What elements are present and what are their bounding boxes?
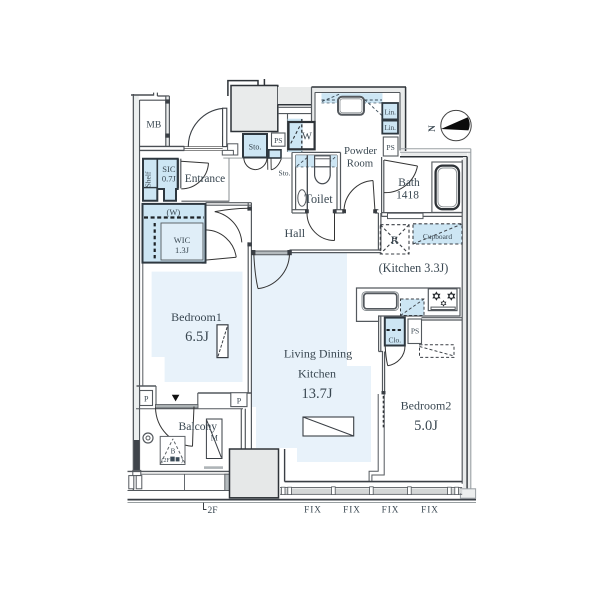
svg-text:13.7J: 13.7J (301, 386, 332, 402)
svg-text:6.5J: 6.5J (185, 329, 209, 345)
svg-text:R: R (391, 235, 399, 247)
svg-text:Shelf: Shelf (144, 171, 153, 187)
svg-text:MB: MB (146, 120, 161, 130)
svg-text:1418: 1418 (396, 189, 419, 201)
svg-text:Bath: Bath (398, 177, 420, 189)
svg-text:PS: PS (411, 326, 419, 335)
svg-text:Sto.: Sto. (249, 143, 262, 152)
svg-text:W: W (302, 132, 312, 143)
svg-text:M: M (211, 433, 218, 442)
svg-text:N: N (427, 125, 437, 132)
svg-text:FIX: FIX (343, 505, 361, 515)
svg-text:Lin.: Lin. (384, 124, 396, 132)
svg-text:5.0J: 5.0J (414, 418, 438, 434)
svg-text:WIC: WIC (174, 235, 191, 245)
svg-text:P: P (237, 396, 242, 405)
svg-text:FIX: FIX (421, 505, 439, 515)
svg-text:(Kitchen 3.3J): (Kitchen 3.3J) (379, 261, 449, 275)
svg-text:Bedroom1: Bedroom1 (171, 310, 222, 324)
svg-text:1.3J: 1.3J (175, 245, 190, 255)
svg-text:Kitchen: Kitchen (298, 366, 336, 380)
svg-text:(2F: (2F (161, 457, 170, 464)
svg-text:Sto.: Sto. (279, 169, 291, 178)
svg-text:Powder: Powder (344, 145, 377, 157)
svg-text:(W): (W) (167, 207, 181, 217)
svg-text:2F: 2F (207, 506, 217, 516)
svg-text:0.7J: 0.7J (162, 174, 177, 184)
svg-text:FIX: FIX (304, 505, 322, 515)
svg-text:SIC: SIC (162, 164, 176, 174)
svg-text:P: P (144, 395, 149, 404)
svg-text:Lin.: Lin. (384, 108, 396, 116)
svg-text:PS: PS (386, 143, 394, 152)
svg-text:Entrance: Entrance (185, 173, 225, 185)
svg-text:Hall: Hall (284, 226, 305, 240)
svg-text:Toilet: Toilet (304, 192, 333, 206)
svg-text:Bedroom2: Bedroom2 (401, 399, 452, 413)
svg-text:Room: Room (347, 158, 374, 170)
svg-text:Clo.: Clo. (388, 336, 401, 345)
svg-text:Balcony: Balcony (178, 420, 217, 433)
svg-text:Cupboard: Cupboard (423, 232, 452, 241)
svg-text:PS: PS (274, 136, 282, 145)
svg-text:): ) (181, 457, 183, 464)
svg-text:B: B (171, 447, 176, 455)
svg-text:Living Dining: Living Dining (284, 346, 352, 360)
svg-text:FIX: FIX (382, 505, 400, 515)
